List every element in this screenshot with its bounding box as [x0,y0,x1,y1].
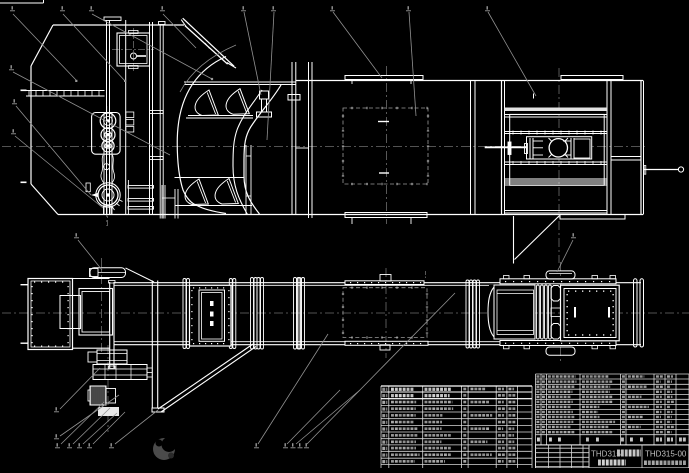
svg-text:THD315-00: THD315-00 [645,450,687,459]
svg-text:THD315: THD315 [591,450,621,459]
